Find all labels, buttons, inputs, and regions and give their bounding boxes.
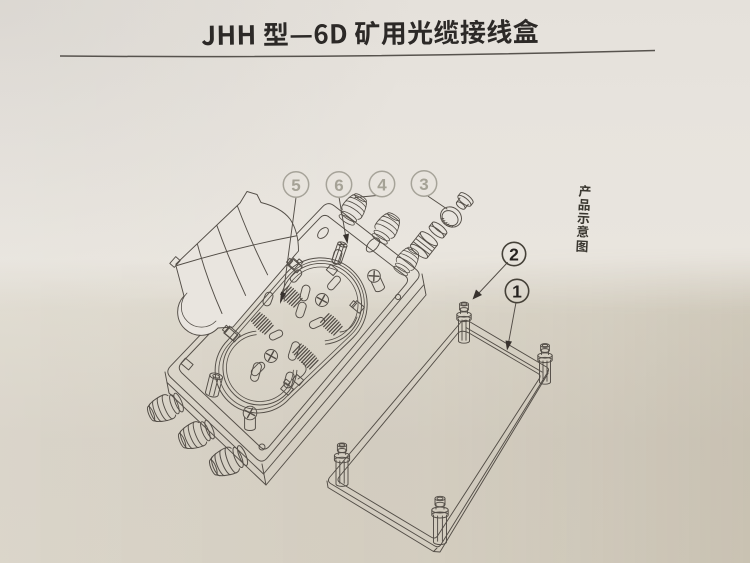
svg-text:3: 3 xyxy=(419,175,428,194)
svg-text:5: 5 xyxy=(291,176,300,195)
svg-text:2: 2 xyxy=(509,245,519,265)
svg-text:6: 6 xyxy=(334,176,343,195)
svg-text:4: 4 xyxy=(377,176,387,195)
svg-text:1: 1 xyxy=(512,282,522,302)
